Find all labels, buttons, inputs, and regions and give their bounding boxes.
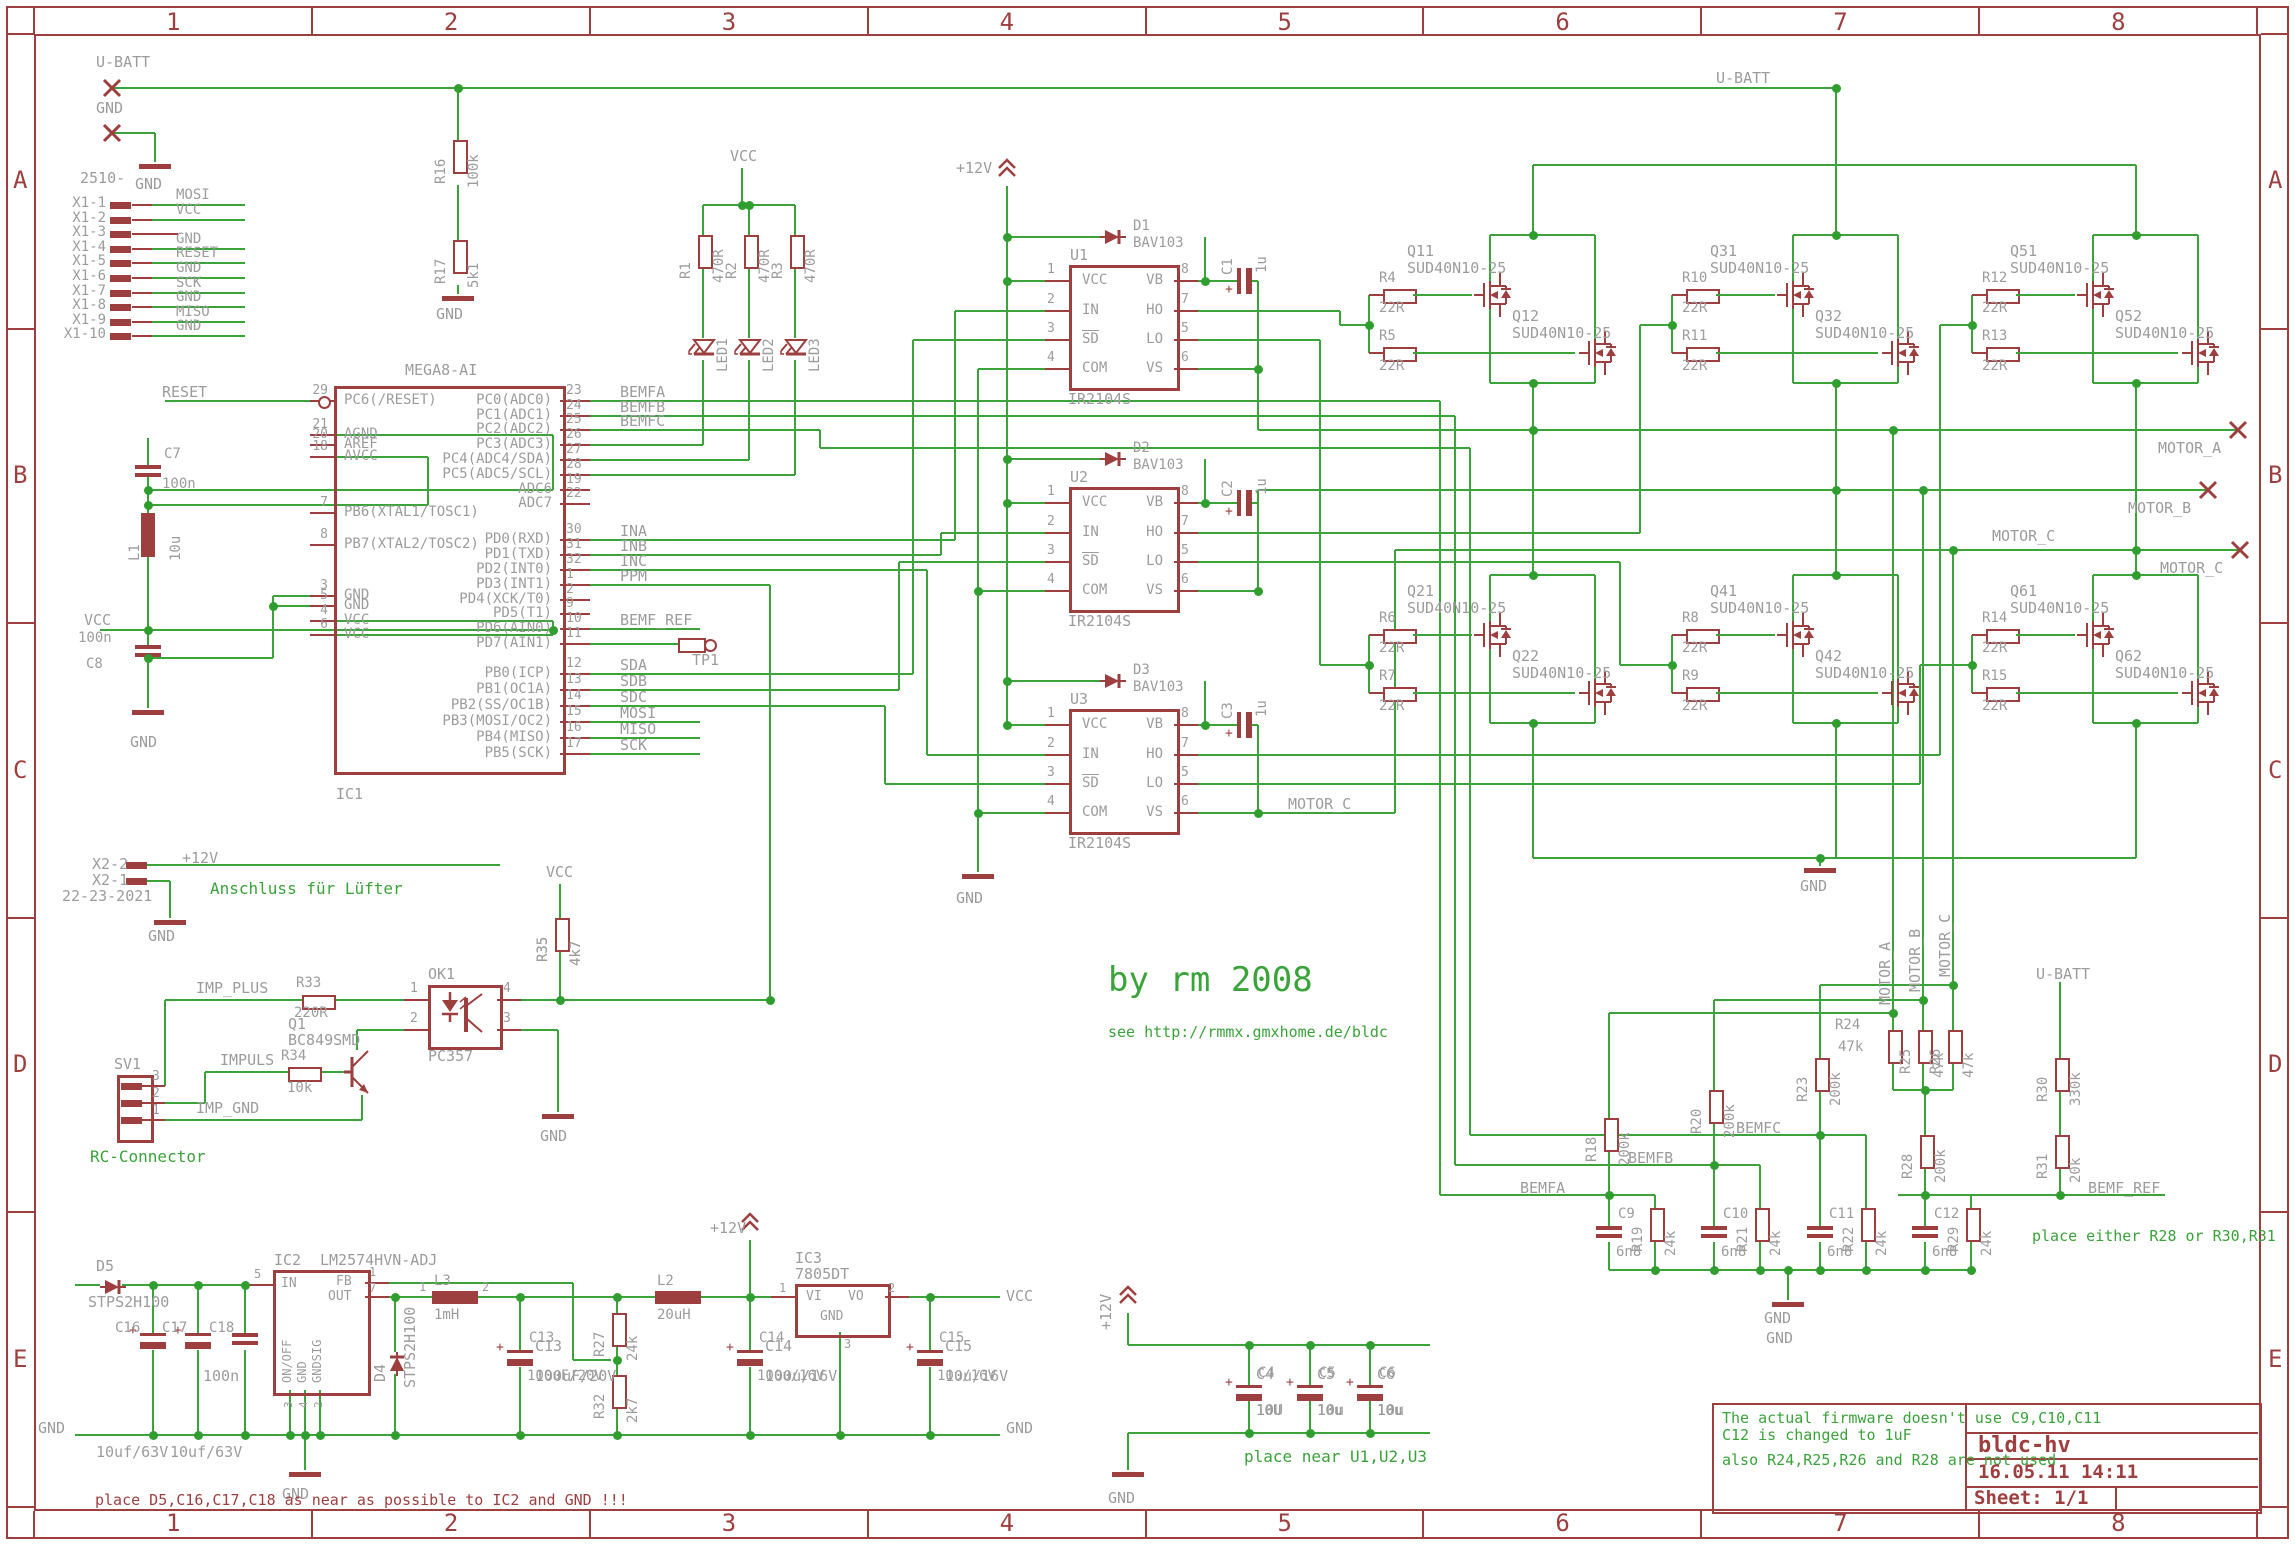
junction-dot	[2132, 546, 2141, 555]
pin-name: AVCC	[344, 449, 378, 464]
junction-dot	[1366, 1429, 1375, 1438]
wire	[457, 285, 459, 294]
testpoint-tp1	[678, 638, 706, 653]
wire	[164, 1000, 166, 1086]
junction-dot	[149, 1431, 158, 1440]
frame-tick	[589, 1511, 591, 1537]
wire	[1257, 281, 1259, 369]
pin-lead	[1672, 294, 1686, 296]
cap-plate	[507, 1350, 533, 1353]
wire	[926, 570, 928, 755]
frame-column-label: 1	[166, 1510, 180, 1536]
cap-ref: C10	[1723, 1207, 1748, 1222]
wire	[394, 1297, 396, 1352]
pin-name: VB	[1146, 495, 1163, 510]
frame-tick	[8, 917, 34, 919]
text-label: VO	[848, 1290, 864, 1304]
frame-tick	[8, 328, 34, 330]
pin-lead	[560, 643, 590, 645]
wire	[1198, 590, 1258, 592]
text-label: D4	[372, 1364, 389, 1382]
pin-lead	[132, 335, 152, 337]
wire	[912, 340, 914, 674]
resistor-ref: R35	[536, 937, 551, 962]
resistor-ref: R25	[1899, 1049, 1914, 1074]
resistor-value: 24k	[1769, 1231, 1784, 1256]
text-label: GND	[436, 306, 463, 323]
reset-bubble	[318, 396, 331, 409]
wire	[1369, 1345, 1371, 1385]
pin-name: VS	[1146, 361, 1163, 376]
junction-dot	[613, 1356, 622, 1365]
plus12v-arrow-icon	[998, 158, 1016, 178]
text-label: SV1	[114, 1056, 141, 1073]
text-label: VCC	[730, 148, 757, 165]
pin-lead	[1369, 692, 1383, 694]
inductor-L3	[432, 1291, 478, 1304]
cap-ref: C2	[1221, 480, 1236, 497]
wire	[1258, 429, 2238, 431]
frame-column-label: 6	[1555, 9, 1569, 35]
junction-dot	[1003, 499, 1012, 508]
junction-dot	[1832, 571, 1841, 580]
wire	[1258, 489, 2208, 491]
wire	[1533, 857, 2136, 859]
wire	[197, 1285, 199, 1333]
junction-dot	[1949, 981, 1958, 990]
text-label: VCC	[1006, 1288, 1033, 1305]
wire	[1532, 723, 1534, 858]
motor-b-flag	[2199, 481, 2217, 499]
pin-number: 6	[1181, 573, 1189, 587]
pin-name: VB	[1146, 717, 1163, 732]
text-label: 10U	[1256, 1402, 1283, 1419]
wire	[478, 1296, 655, 1298]
text-label: C6	[1377, 1366, 1395, 1383]
junction-dot	[1529, 719, 1538, 728]
motor-a-flag	[2229, 421, 2247, 439]
junction-dot	[1889, 1009, 1898, 1018]
junction-dot	[1832, 84, 1841, 93]
text-label: VCC	[546, 864, 573, 881]
pin-lead	[560, 753, 590, 755]
wire	[148, 657, 273, 659]
wire	[1413, 634, 1472, 636]
driver-ref: U1	[1070, 247, 1088, 264]
text-label: GND	[130, 734, 157, 751]
pin-number: 1	[152, 1104, 160, 1118]
diode-icon	[1100, 228, 1126, 246]
wire	[519, 1367, 521, 1435]
junction-dot	[974, 809, 983, 818]
pin-number: 8	[320, 528, 328, 542]
wire	[1198, 339, 1320, 341]
pin-number: 1	[410, 982, 418, 996]
drawing-title: bldc-hv	[1978, 1434, 2071, 1458]
pin-lead	[132, 219, 152, 221]
pin-number: 8	[1181, 263, 1189, 277]
cap-plate	[1701, 1234, 1727, 1238]
pin-name: LO	[1146, 554, 1163, 569]
frame-row-label: C	[2268, 757, 2282, 783]
wire	[146, 880, 170, 882]
text-label: GND	[135, 176, 162, 193]
text-label: IMP_GND	[196, 1100, 259, 1117]
cap-plate	[135, 645, 161, 649]
junction-dot	[1921, 1086, 1930, 1095]
gnd-symbol	[962, 874, 994, 879]
pin-number: 18	[312, 440, 328, 454]
connector-pad	[126, 862, 147, 869]
junction-dot	[1254, 809, 1263, 818]
wire	[497, 999, 770, 1001]
text-label: GND	[1764, 1310, 1791, 1327]
text-label: +12V	[1098, 1294, 1115, 1330]
pin-lead	[1174, 339, 1198, 341]
junction-dot	[516, 1293, 525, 1302]
junction-dot	[1254, 587, 1263, 596]
frame-column-label: 8	[2111, 9, 2125, 35]
wire	[75, 1434, 1000, 1436]
mosfet-icon	[1777, 613, 1815, 657]
text-label: 7	[369, 1282, 376, 1295]
wire	[702, 265, 704, 338]
pin-lead	[1174, 310, 1198, 312]
mosfet-icon	[1474, 273, 1512, 317]
u-batt-flag	[103, 79, 121, 97]
cap-plate	[917, 1359, 943, 1366]
wire	[1952, 985, 1954, 1030]
resistor-value: 100k	[467, 154, 482, 188]
wire	[1716, 634, 1775, 636]
text-label: 5	[254, 1268, 261, 1281]
frame-tick	[8, 622, 34, 624]
frame-tick	[8, 1506, 34, 1508]
cap-ref: C3	[1221, 702, 1236, 719]
text-label: +12V	[710, 1220, 746, 1237]
wire	[1204, 681, 1206, 725]
wire	[590, 459, 749, 461]
mosfet-value: SUD40N10-25	[1407, 600, 1506, 617]
cap-plate	[1237, 712, 1241, 738]
wire	[702, 205, 704, 235]
wire	[1007, 724, 1045, 726]
diode-ref: D1	[1133, 219, 1150, 234]
junction-dot	[1003, 677, 1012, 686]
diode-ref: D3	[1133, 663, 1150, 678]
resistor-value: 22R	[1379, 301, 1404, 316]
wire	[977, 369, 979, 872]
wire	[1819, 1090, 1821, 1135]
pin-lead	[1672, 634, 1686, 636]
pin-name: PB4(MISO)	[476, 730, 552, 745]
pin-number: 9	[566, 597, 574, 611]
text-label: place D5,C16,C17,C18 as near as possible…	[95, 1492, 628, 1509]
pin-name: HO	[1146, 303, 1163, 318]
text-label: 1	[779, 1282, 786, 1295]
text-label: MOTOR_A	[2158, 440, 2221, 457]
resistor-ref: R6	[1379, 611, 1396, 626]
cap-polarity: +	[1225, 283, 1233, 297]
junction-dot	[1949, 546, 1958, 555]
wire	[1128, 1344, 1430, 1346]
wire	[1413, 352, 1575, 354]
text-label: place either R28 or R30,R31	[2032, 1228, 2276, 1245]
cap-plate	[1912, 1226, 1938, 1230]
connector-pad	[121, 1100, 142, 1107]
frame-tick	[2261, 622, 2287, 624]
text-label: 10uf/63V	[96, 1444, 168, 1461]
mosfet-ref: Q21	[1407, 583, 1434, 600]
text-label: PC357	[428, 1048, 473, 1065]
text-label: GND	[1766, 1330, 1793, 1347]
resistor-ref: R5	[1379, 329, 1396, 344]
pin-lead	[1045, 280, 1069, 282]
pin-lead	[1045, 339, 1069, 341]
wire	[1609, 1012, 1893, 1014]
text-label: C5	[1317, 1366, 1335, 1383]
pin-number: 16	[566, 721, 582, 735]
junction-dot	[1919, 486, 1928, 495]
net-label: SCK	[620, 737, 647, 754]
wire	[794, 265, 796, 338]
wire	[147, 657, 149, 708]
junction-dot	[926, 1293, 935, 1302]
junction-dot	[1254, 365, 1263, 374]
wire	[941, 532, 1045, 534]
junction-dot	[2132, 571, 2141, 580]
cap-polarity: +	[726, 1341, 734, 1355]
text-label: 100n	[203, 1368, 239, 1385]
junction-dot	[1832, 231, 1841, 240]
mosfet-value: SUD40N10-25	[1815, 665, 1914, 682]
junction-dot	[1816, 1131, 1825, 1140]
wire	[1490, 722, 1595, 724]
frame-row-label: A	[2268, 167, 2282, 193]
junction-dot	[286, 1431, 295, 1440]
cap-plate	[1236, 1394, 1262, 1401]
text-label: MOTOR_C	[1288, 796, 1351, 813]
pin-number: 8	[1181, 707, 1189, 721]
text-label: BEMF_REF	[2088, 1180, 2160, 1197]
wire	[394, 1374, 396, 1435]
wire	[1490, 234, 1595, 236]
pin-number: 2	[482, 1281, 489, 1294]
cap-plate	[185, 1342, 211, 1349]
wire	[1608, 1013, 1610, 1118]
wire	[590, 415, 1455, 417]
text-label: GND	[1006, 1420, 1033, 1437]
junction-dot	[549, 626, 558, 635]
text-label: C15	[945, 1338, 972, 1355]
junction-dot	[1968, 661, 1977, 670]
resistor-value: 24k	[1664, 1231, 1679, 1256]
frame-tick	[1700, 1511, 1702, 1537]
text-label: GND	[540, 1128, 567, 1145]
frame-tick	[1978, 1511, 1980, 1537]
wire	[1819, 1135, 1821, 1226]
junction-dot	[2132, 231, 2141, 240]
wire	[748, 265, 750, 338]
diode-value: BAV103	[1133, 236, 1184, 251]
resistor-ref: R20	[1690, 1109, 1705, 1134]
wire	[1198, 532, 1640, 534]
title-block-sheet-divider	[2115, 1486, 2117, 1510]
junction-dot	[144, 626, 153, 635]
wire	[749, 1240, 751, 1297]
frame-tick	[867, 1511, 869, 1537]
wire	[2093, 722, 2198, 724]
resistor-ref: R9	[1682, 669, 1699, 684]
mosfet-icon	[1777, 273, 1815, 317]
resistor-ref: R2	[725, 262, 740, 279]
pin-name: VCC	[1082, 495, 1107, 510]
mosfet-ref: Q32	[1815, 308, 1842, 325]
junction-dot	[1201, 277, 1210, 286]
resistor-value: 22R	[1982, 699, 2007, 714]
wire	[954, 311, 956, 540]
junction-dot	[391, 1293, 400, 1302]
wire	[1128, 1432, 1430, 1434]
frame-column-label: 7	[1833, 9, 1847, 35]
resistor-ref: R24	[1835, 1018, 1860, 1033]
junction-dot	[144, 654, 153, 663]
wire	[794, 205, 796, 235]
wire	[2093, 382, 2198, 384]
wire	[741, 168, 743, 205]
diode-value: BAV103	[1133, 458, 1184, 473]
wire	[1713, 1165, 1715, 1226]
wire	[1320, 664, 1369, 666]
wire	[769, 585, 771, 1000]
text-label: GNDSIG	[311, 1340, 324, 1383]
pin-lead	[1972, 692, 1986, 694]
inductor-L2	[655, 1291, 701, 1304]
connector-pad	[121, 1117, 142, 1124]
text-label: 3	[283, 1401, 295, 1408]
wire	[819, 430, 821, 448]
connector-pad	[110, 246, 131, 253]
wire	[1793, 574, 1898, 576]
cap-value: 1u	[1255, 256, 1270, 273]
cap-plate	[1236, 1385, 1262, 1388]
wire	[978, 812, 1045, 814]
frame-row-label: B	[13, 462, 27, 488]
junction-dot	[144, 486, 153, 495]
wire	[572, 1283, 574, 1360]
resistor-value: 470R	[804, 249, 819, 283]
pin-name: PB6(XTAL1/TOSC1)	[344, 505, 479, 520]
wire	[519, 1297, 521, 1350]
text-label: +12V	[182, 850, 218, 867]
wire	[1490, 574, 1595, 576]
wire	[1198, 368, 1258, 370]
driver-ref: U2	[1070, 469, 1088, 486]
wire	[885, 783, 1045, 785]
frame-column-label: 2	[444, 1510, 458, 1536]
resistor-ref: R10	[1682, 271, 1707, 286]
junction-dot	[1201, 721, 1210, 730]
text-label: 1	[369, 1266, 376, 1279]
pin-number: 8	[1181, 485, 1189, 499]
connector-pad	[110, 260, 131, 267]
resistor-ref: R11	[1682, 329, 1707, 344]
cap-value: 6n8	[1827, 1245, 1852, 1260]
wire	[273, 605, 310, 607]
cap-ref: C1	[1221, 258, 1236, 275]
resistor-value: 22R	[1982, 301, 2007, 316]
pin-number: 3	[1047, 544, 1055, 558]
frame-row-label: D	[13, 1051, 27, 1077]
pin-lead	[1174, 812, 1198, 814]
gnd-symbol	[154, 920, 186, 925]
wire	[389, 1282, 573, 1284]
wire	[1952, 1062, 1954, 1090]
frame-column-label: 7	[1833, 1510, 1847, 1536]
text-label: C14	[765, 1338, 792, 1355]
resistor-ref: R17	[434, 259, 449, 284]
wire	[1716, 692, 1878, 694]
resistor-value: 22R	[1682, 641, 1707, 656]
pin-number: 1	[1047, 485, 1055, 499]
wire	[573, 1359, 611, 1361]
pin-lead	[310, 634, 334, 636]
pin-number: 5	[1181, 766, 1189, 780]
mosfet-ref: Q42	[1815, 648, 1842, 665]
wire	[590, 400, 1440, 402]
wire	[1395, 549, 2240, 551]
cap-plate	[737, 1359, 763, 1366]
junction-dot	[1816, 1266, 1825, 1275]
led-ref: LED2	[762, 338, 777, 372]
inductor-value: 1mH	[434, 1308, 459, 1323]
wire	[940, 533, 942, 555]
gnd-symbol	[139, 164, 171, 169]
mosfet-value: SUD40N10-25	[2115, 325, 2214, 342]
connector-pad	[110, 304, 131, 311]
junction-dot	[1668, 321, 1677, 330]
wire	[899, 561, 1045, 563]
wire	[559, 884, 561, 918]
pin-number: 2	[410, 1012, 418, 1026]
frame-column-label: 3	[722, 1510, 736, 1536]
driver-value: IR2104S	[1068, 613, 1131, 630]
pin-name: SD	[1082, 554, 1099, 569]
frame-tick	[2256, 8, 2258, 34]
mosfet-value: SUD40N10-25	[1710, 260, 1809, 277]
frame-column-label: 4	[1000, 9, 1014, 35]
wire	[1835, 88, 1837, 165]
inductor-value: 10u	[169, 536, 184, 561]
cap-plate	[1912, 1234, 1938, 1238]
inductor-ref: L3	[434, 1274, 451, 1289]
text-label: FB	[336, 1275, 352, 1289]
cap-plate	[1701, 1226, 1727, 1230]
pin-name: VCC	[1082, 717, 1107, 732]
cap-plate	[232, 1341, 258, 1345]
gnd-symbol	[132, 710, 164, 715]
pin-lead	[1369, 294, 1383, 296]
resistor-ref: R4	[1379, 271, 1396, 286]
wire	[909, 1296, 1000, 1298]
text-label: IC1	[336, 786, 363, 803]
resistor-value: 22R	[1379, 641, 1404, 656]
text-label: place near U1,U2,U3	[1244, 1448, 1427, 1466]
pin-lead	[560, 569, 590, 571]
wire	[590, 643, 678, 645]
junction-dot	[1832, 719, 1841, 728]
junction-dot	[269, 602, 278, 611]
